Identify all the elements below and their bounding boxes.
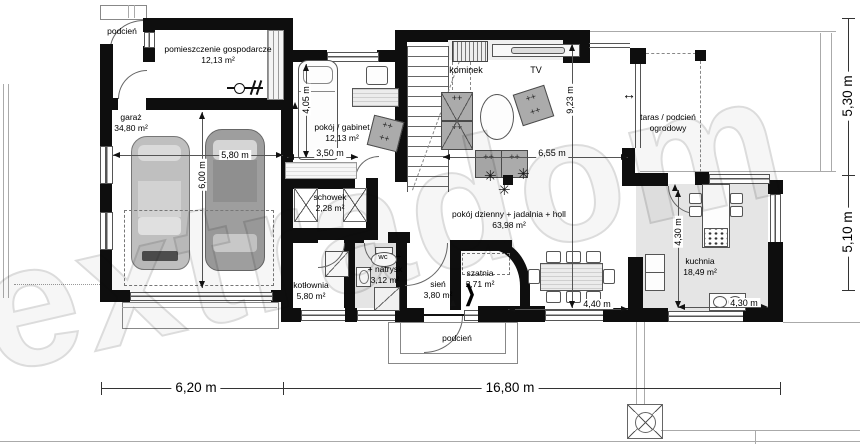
wall (628, 257, 643, 313)
door-arc (118, 70, 147, 99)
dim-tick (780, 382, 781, 395)
tv-label: TV (530, 65, 542, 75)
coffee-table-icon (480, 94, 514, 140)
dim-arrow (199, 281, 205, 288)
stool-icon (689, 193, 702, 204)
entry-arrow-icon (292, 102, 298, 109)
room-label-gabinet: pokój / gabinet 12,13 m² (314, 122, 369, 144)
wall (622, 173, 668, 186)
room-label-kuchnia: kuchnia 18,49 m² (683, 256, 717, 278)
door-arc (355, 156, 379, 179)
plot-line (14, 284, 100, 285)
driveway-line (122, 307, 277, 308)
room-name: pokój dzienny + jadalnia + holl (452, 209, 566, 220)
dim-side-bottom: 5,10 m (843, 207, 853, 256)
dim-gabinet-width: 3,50 m (314, 148, 346, 158)
room-label-natrysk: + natrysk 3,12 m² (368, 264, 403, 286)
sliding-door-icon: ↔ (622, 86, 636, 102)
window (668, 311, 745, 322)
room-area: 18,49 m² (683, 267, 717, 278)
wall (448, 30, 580, 40)
roof-overhang-dashed (646, 53, 696, 54)
wall (100, 98, 118, 110)
tv-cabinet (492, 44, 580, 57)
dim-total-left: 6,20 m (171, 383, 220, 393)
car-rear-window (138, 145, 181, 161)
room-name: schowek (313, 192, 346, 203)
wall (143, 46, 155, 62)
room-area: 5,80 m² (293, 291, 328, 302)
window (545, 310, 605, 321)
room-name: taras / podcień (640, 112, 696, 123)
terrace-edge (640, 171, 836, 172)
wall (281, 110, 293, 312)
cooktop-icon (704, 228, 728, 247)
wall (400, 30, 448, 42)
dim-living-width: 6,55 m (536, 148, 568, 158)
dim-line (678, 307, 768, 308)
wall (143, 18, 155, 32)
desk-icon (352, 88, 399, 107)
chair-icon (566, 251, 581, 263)
dim-arrow (569, 44, 575, 51)
inspection-box-icon (627, 404, 663, 439)
dim-arrow (678, 304, 685, 310)
sofa-icon: ++ ++ (441, 92, 473, 150)
dim-garage-height: 6,00 m (197, 159, 207, 191)
fireplace-icon (452, 41, 488, 62)
dim-line (508, 309, 628, 310)
inspection-box-circle (635, 412, 656, 433)
dim-arrow (621, 306, 628, 312)
column (695, 50, 706, 61)
window (327, 52, 379, 62)
terrace-edge (578, 31, 836, 32)
chair-icon (546, 291, 561, 303)
parking-zone-dashed (124, 210, 274, 286)
dim-arrow (675, 190, 681, 197)
room-name: pokój / gabinet (314, 122, 369, 133)
plot-line (3, 84, 4, 298)
plot-line (0, 441, 860, 442)
room-name: + natrysk (368, 264, 403, 275)
room-name: kuchnia (683, 256, 717, 267)
glass-wall (589, 43, 630, 44)
room-label-kotlownia: kotłownia 5,80 m² (293, 280, 328, 302)
room-label-podcien-bottom: podcień (442, 333, 472, 344)
dim-arrow (113, 152, 120, 158)
plot-line (783, 322, 860, 323)
dim-bed: 4,05 m (301, 84, 311, 116)
window (100, 146, 113, 184)
fireplace-label: kominek (449, 65, 483, 75)
wall (768, 180, 783, 194)
wall (143, 18, 293, 30)
garage-door (130, 292, 273, 301)
upholstery-mark: + (383, 133, 391, 144)
roof-overhang-dashed (700, 61, 701, 172)
room-name: podcień (442, 333, 472, 344)
dim-arrow (443, 154, 450, 160)
chair-icon (546, 251, 561, 263)
glass-wall (589, 47, 630, 48)
wc-plus: + (397, 252, 402, 261)
cabinet-icon (343, 188, 367, 222)
dim-arrow (508, 306, 515, 312)
room-name: podcień (107, 26, 137, 37)
stool-icon (730, 193, 743, 204)
terrace-edge (831, 33, 832, 172)
room-name: szatnia (466, 268, 495, 279)
dim-arrow (303, 64, 309, 71)
dim-line (678, 190, 679, 308)
dim-line (202, 112, 203, 288)
wall (388, 232, 410, 243)
room-area: 3,12 m² (368, 275, 403, 286)
dim-arrow (287, 154, 294, 160)
dim-side-top: 5,30 m (843, 71, 853, 120)
window (357, 310, 397, 321)
chair-icon (603, 269, 615, 284)
wall (768, 242, 783, 322)
room-label-schowek: schowek 2,28 m² (313, 192, 346, 214)
room-area: 63,98 m² (452, 220, 566, 231)
column (630, 48, 646, 64)
dim-living-height: 9,23 m (565, 84, 575, 116)
dim-tick (101, 382, 102, 395)
dim-tick (283, 382, 284, 395)
wall (293, 232, 318, 243)
drain-line (636, 322, 637, 404)
dim-arrow (621, 154, 628, 160)
dim-tick (842, 18, 855, 19)
room-label-podcien-top: podcień (107, 26, 137, 37)
room-label-szatnia: szatnia 2,71 m² (466, 268, 495, 290)
plant-icon: ✳ (498, 184, 511, 198)
drain-line (644, 322, 645, 404)
room-name: ogrodowy (640, 123, 696, 134)
armchair-icon: ++ ++ (513, 85, 555, 127)
cabinet-icon (645, 272, 665, 291)
vent-symbol-circle (234, 83, 245, 94)
dim-total-right: 16,80 m (482, 383, 539, 393)
room-area: 3,80 m² (424, 290, 453, 301)
wardrobe-strip (285, 162, 357, 179)
room-name: kotłownia (293, 280, 328, 291)
wall (100, 290, 130, 302)
car-roof (213, 160, 257, 202)
plant-icon: ✳ (517, 168, 530, 182)
sofa-cross (441, 92, 473, 150)
window (100, 212, 113, 250)
chair-icon (528, 269, 540, 284)
room-label-wc: wc (378, 252, 387, 261)
terrace-edge (820, 33, 821, 172)
room-area: 12,13 m² (314, 133, 369, 144)
fridge-icon (645, 254, 665, 273)
room-label-pom-gosp: pomieszczenie gospodarcze 12,13 m² (164, 44, 271, 66)
dim-tick (842, 290, 855, 291)
room-area: 2,28 m² (313, 203, 346, 214)
room-area: 34,80 m² (114, 123, 148, 134)
floor-plan: ↔ ++ ++ ++ ++ ++ (0, 0, 860, 444)
room-area: 2,71 m² (466, 279, 495, 290)
door-frame (144, 32, 155, 48)
wall (100, 110, 112, 302)
tv-icon (511, 47, 565, 54)
dim-dining-width: 4,40 m (581, 299, 613, 309)
dim-arrow (199, 112, 205, 119)
plot-line (755, 430, 756, 444)
room-label-living: pokój dzienny + jadalnia + holl 63,98 m² (452, 209, 566, 231)
porch-post (134, 5, 135, 18)
room-name: garaż (114, 112, 148, 123)
wall (345, 308, 357, 322)
porch-roof-outline (100, 5, 147, 20)
window (709, 174, 770, 184)
plot-line (8, 84, 9, 298)
porch-post (128, 5, 129, 18)
upholstery-mark: + (386, 120, 394, 131)
plot-line (661, 430, 860, 431)
shower-icon (374, 287, 400, 311)
window (770, 194, 781, 244)
dim-arrow (569, 301, 575, 308)
window (301, 310, 347, 321)
plant-icon: ✳ (484, 170, 497, 184)
dim-arrow (351, 154, 358, 160)
room-name: pomieszczenie gospodarcze (164, 44, 271, 55)
wall (281, 308, 301, 322)
dim-arrow (276, 152, 283, 158)
desk-chair-icon (366, 66, 388, 85)
wall (344, 232, 364, 243)
stool-icon (730, 206, 743, 217)
glass-wall (635, 64, 636, 148)
room-name: sień (424, 279, 453, 290)
room-label-garaz: garaż 34,80 m² (114, 112, 148, 134)
glass-wall (640, 64, 641, 148)
room-area: 12,13 m² (164, 55, 271, 66)
room-label-sien: sień 3,80 m² (424, 279, 453, 301)
dim-garage-width: 5,80 m (219, 150, 251, 160)
dim-arrow (761, 304, 768, 310)
dim-tick (842, 175, 855, 176)
room-label-taras: taras / podcień ogrodowy (640, 112, 696, 134)
stool-icon (689, 206, 702, 217)
dim-line (113, 155, 283, 156)
chair-icon (586, 251, 601, 263)
dim-kitchen-height: 4,30 m (673, 216, 683, 248)
